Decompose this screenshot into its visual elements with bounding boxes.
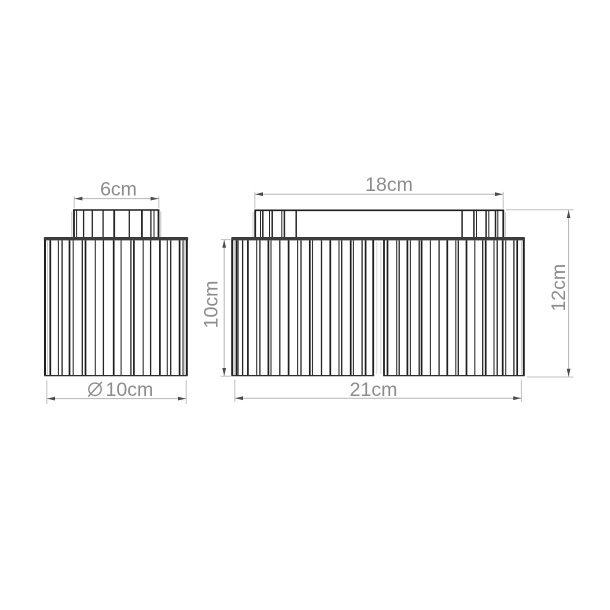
svg-text:6cm: 6cm [100,178,137,200]
svg-text:18cm: 18cm [365,174,413,196]
svg-text:10cm: 10cm [201,281,223,329]
svg-text:21cm: 21cm [350,379,398,401]
svg-text:10cm: 10cm [106,379,154,401]
svg-text:12cm: 12cm [548,264,570,312]
